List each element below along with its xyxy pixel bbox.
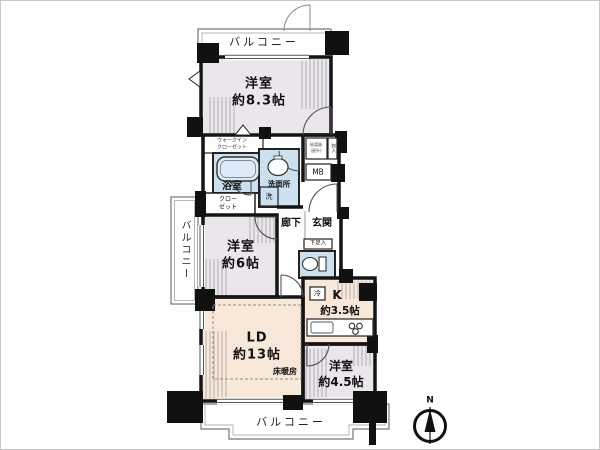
hallway-label: 廊下: [281, 219, 301, 229]
washroom-label: 洗面所: [268, 180, 291, 188]
floor-heating-label: 床暖房: [273, 368, 297, 376]
kitchen-counter: [307, 319, 373, 336]
compass-icon: [415, 407, 446, 444]
fridge-label: 冷: [314, 290, 321, 297]
entrance-label: 玄関: [312, 219, 332, 229]
water-heater-line2: (屋外): [310, 149, 321, 153]
balcony-bottom-label: バルコニー: [256, 417, 326, 428]
living-dining-name: LD: [246, 332, 267, 345]
bedroom83-name: 洋室: [245, 78, 273, 91]
bathroom-label: 浴室: [222, 182, 242, 192]
closet-line2: ゼット: [219, 205, 237, 211]
closet-line1: クロー: [219, 197, 237, 203]
water-heater-line1: 給湯器: [310, 143, 322, 147]
bedroom6-size: 約6帖: [222, 258, 260, 271]
balcony-left-label: バルコニー: [179, 220, 189, 280]
kitchen-name: K: [332, 289, 341, 301]
kitchen-size: 約3.5帖: [320, 306, 360, 317]
walkin-closet-line1: ウォークイン: [217, 139, 247, 144]
storage-label: 物入: [330, 144, 335, 153]
meter-box-label: MB: [312, 168, 324, 176]
bedroom6-name: 洋室: [227, 241, 255, 254]
bathtub-icon: [217, 157, 259, 181]
bedroom45-size: 約4.5帖: [318, 376, 363, 388]
neighbor-door-arc: [284, 5, 310, 31]
compass-north-label: N: [426, 397, 434, 406]
toilet-icon: [303, 257, 327, 271]
bedroom83-size: 約8.3帖: [232, 95, 286, 108]
shoe-cabinet-label: 下足入: [310, 241, 327, 247]
balcony-top-label: バルコニー: [229, 37, 299, 48]
living-dining-size: 約13帖: [233, 349, 281, 362]
floorplan: バルコニー バルコニー バルコニー 洋室 約8.3帖 ウォークイン クローゼット…: [0, 0, 600, 450]
walkin-closet-line2: クローゼット: [217, 146, 247, 151]
bedroom45-name: 洋室: [329, 360, 353, 372]
washer-label: 洗: [266, 194, 273, 201]
